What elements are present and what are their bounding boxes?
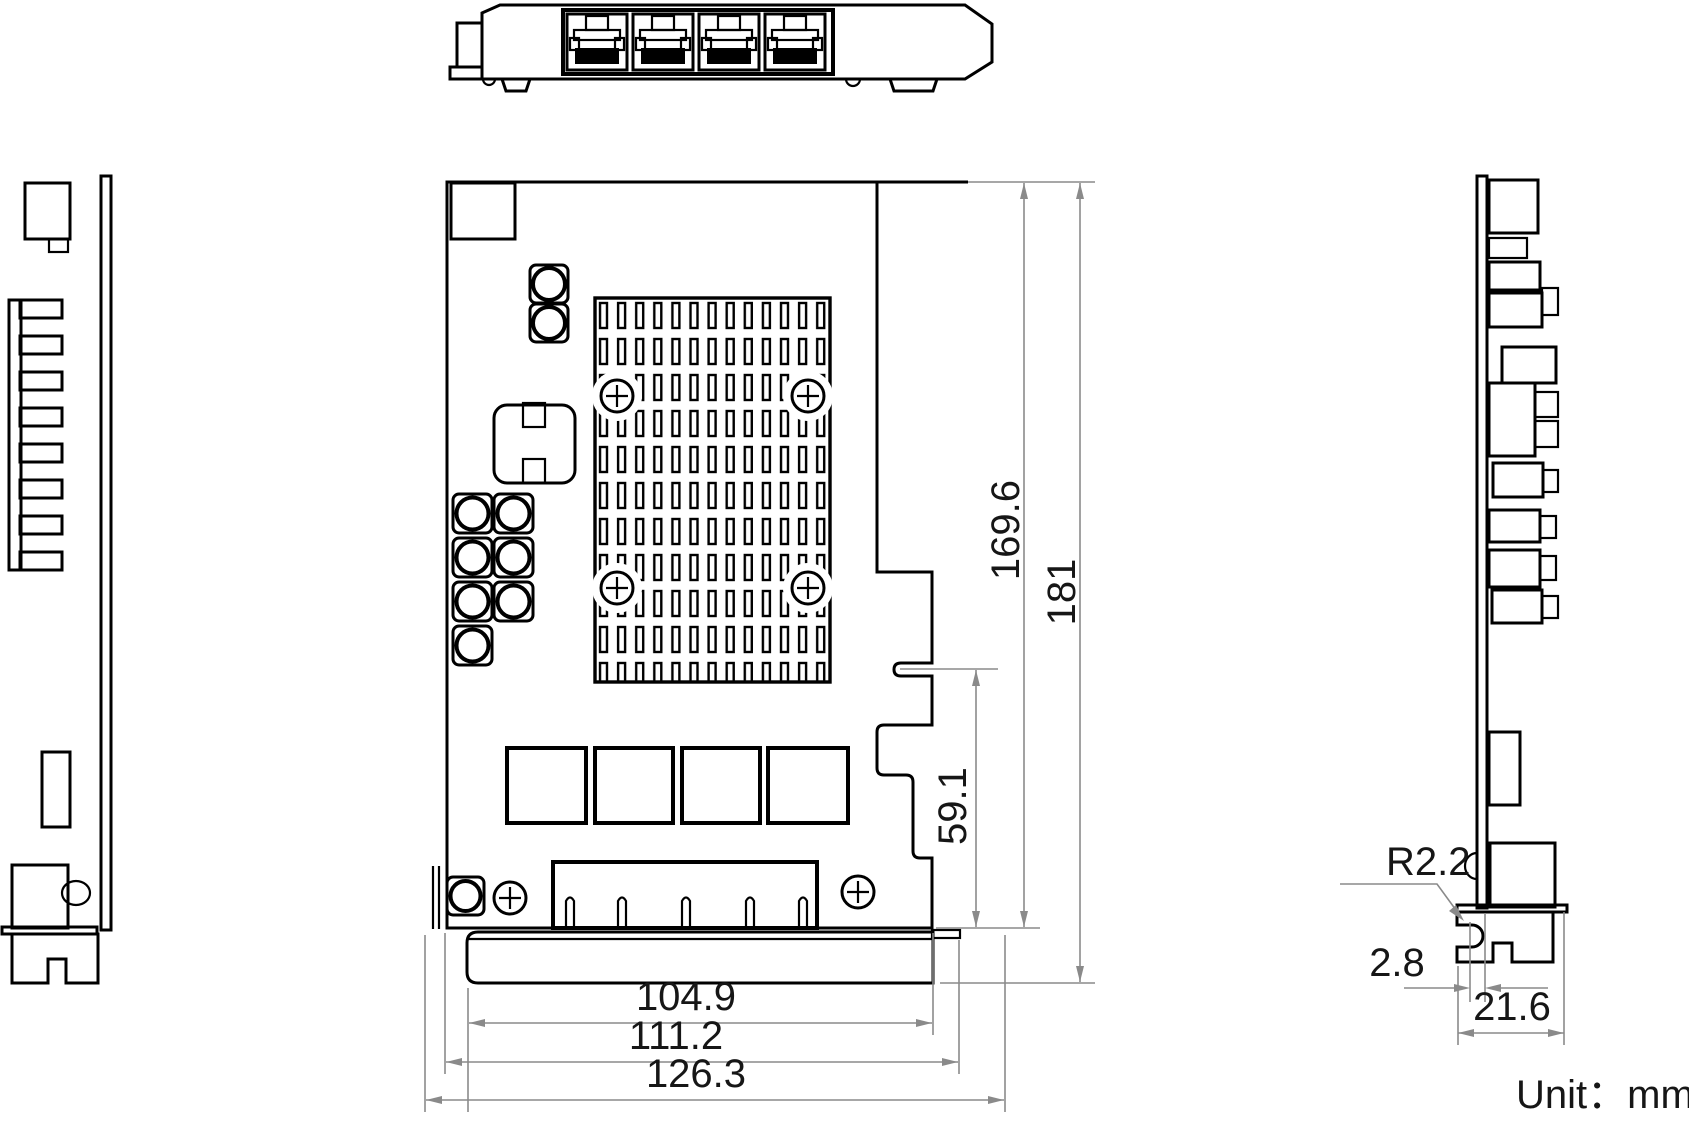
- left-side-view: [2, 176, 111, 983]
- rj45-port: [765, 14, 825, 70]
- bracket-foot: [1457, 912, 1553, 962]
- bracket-screw-bump: [62, 881, 90, 905]
- capacitor: [530, 304, 568, 342]
- dim-label: 126.3: [646, 1052, 746, 1096]
- rj45-port: [633, 14, 693, 70]
- front-view: [433, 182, 960, 983]
- rj45-side-profile: [12, 865, 68, 928]
- dim-label: R2.2: [1386, 840, 1471, 884]
- dimension-21-6: 21.6: [1458, 985, 1564, 1037]
- phillips-screw-icon: [842, 876, 874, 908]
- drawing-canvas: 169.6 181 59.1 104.9 111.2: [0, 0, 1689, 1137]
- bracket-dimple: [502, 79, 530, 91]
- dim-label: 181: [1040, 559, 1084, 626]
- right-side-view: [1457, 176, 1567, 962]
- capacitor-bank: [453, 494, 533, 665]
- dim-label: 169.6: [984, 480, 1028, 580]
- component-profiles: [1489, 180, 1558, 907]
- bracket-left-foot: [450, 67, 482, 79]
- pcb-edge: [101, 176, 111, 930]
- rj45-port: [699, 14, 759, 70]
- dimension-59-1: 59.1: [931, 670, 980, 927]
- component-profile: [42, 752, 70, 827]
- dimension-drawing: 169.6 181 59.1 104.9 111.2: [0, 0, 1689, 1137]
- dimension-126-3: 126.3: [426, 1052, 1004, 1104]
- dimension-181: 181: [1040, 183, 1084, 982]
- bracket-hook: [49, 239, 68, 252]
- rj45-rear-block: [553, 862, 817, 928]
- top-left-component: [451, 183, 515, 239]
- phillips-screw-icon: [494, 882, 526, 914]
- unit-note: Unit：mm: [1516, 1073, 1689, 1117]
- capacitor: [447, 877, 484, 915]
- pcb-edge: [1477, 176, 1487, 908]
- heatsink: [592, 298, 833, 682]
- capacitor: [530, 265, 568, 303]
- bracket-top-tab: [25, 183, 70, 239]
- bracket-left-tab: [457, 23, 482, 67]
- dim-label: 21.6: [1473, 985, 1551, 1029]
- dim-label: 59.1: [931, 767, 975, 845]
- dim-label: 104.9: [636, 975, 736, 1019]
- inductor-component: [494, 403, 575, 483]
- top-view: [450, 5, 992, 91]
- bracket-foot: [12, 934, 98, 983]
- dimension-169-6: 169.6: [984, 183, 1028, 927]
- dim-label: 2.8: [1369, 941, 1425, 985]
- bracket-dimple: [890, 79, 937, 91]
- transformer-row: [507, 748, 848, 823]
- bracket-tab-edge: [433, 866, 439, 929]
- rj45-port: [567, 14, 627, 70]
- dimension-r2-2: R2.2: [1340, 840, 1471, 921]
- heatsink-fins: [9, 300, 62, 570]
